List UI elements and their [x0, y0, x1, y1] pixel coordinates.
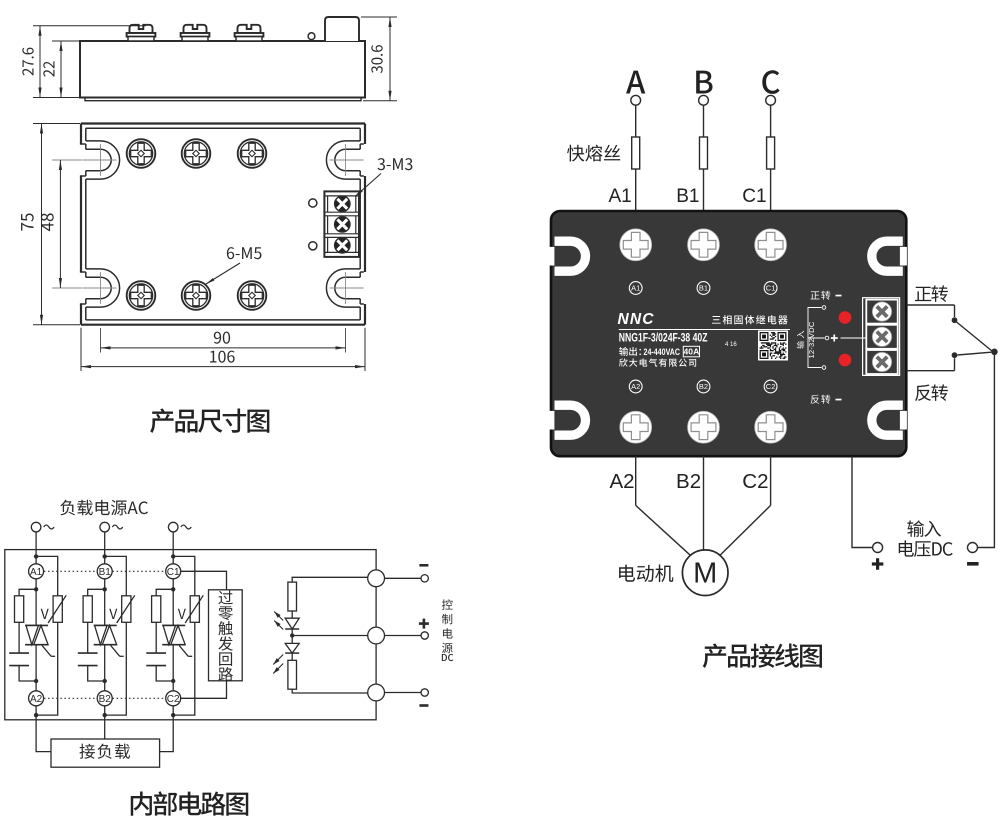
svg-text:B2: B2: [676, 470, 701, 493]
svg-text:C2: C2: [766, 382, 776, 391]
svg-text:A1: A1: [608, 186, 631, 207]
svg-text:NNC: NNC: [618, 311, 655, 328]
svg-text:A1: A1: [30, 567, 43, 578]
svg-text:A2: A2: [30, 694, 43, 705]
svg-text:C2: C2: [167, 694, 180, 705]
svg-text:4 16: 4 16: [725, 342, 737, 348]
svg-text:B1: B1: [99, 567, 112, 578]
svg-text:12-32VDC: 12-32VDC: [807, 321, 816, 358]
svg-text:A2: A2: [609, 470, 634, 493]
svg-text:NNG1F-3/024F-38 40Z: NNG1F-3/024F-38 40Z: [619, 330, 708, 344]
svg-text:40A: 40A: [684, 347, 700, 357]
svg-text:B1: B1: [699, 284, 708, 293]
svg-text:A1: A1: [631, 284, 640, 293]
svg-text:C1: C1: [766, 284, 776, 293]
svg-text:C1: C1: [167, 567, 180, 578]
svg-text:C1: C1: [742, 186, 766, 207]
svg-text:B2: B2: [99, 694, 112, 705]
svg-text:M: M: [693, 558, 717, 590]
svg-text:B1: B1: [676, 186, 699, 207]
svg-text:C2: C2: [742, 470, 768, 493]
svg-text:A2: A2: [631, 382, 640, 391]
svg-text:24-440VAC: 24-440VAC: [644, 347, 681, 358]
svg-text:B2: B2: [699, 382, 708, 391]
